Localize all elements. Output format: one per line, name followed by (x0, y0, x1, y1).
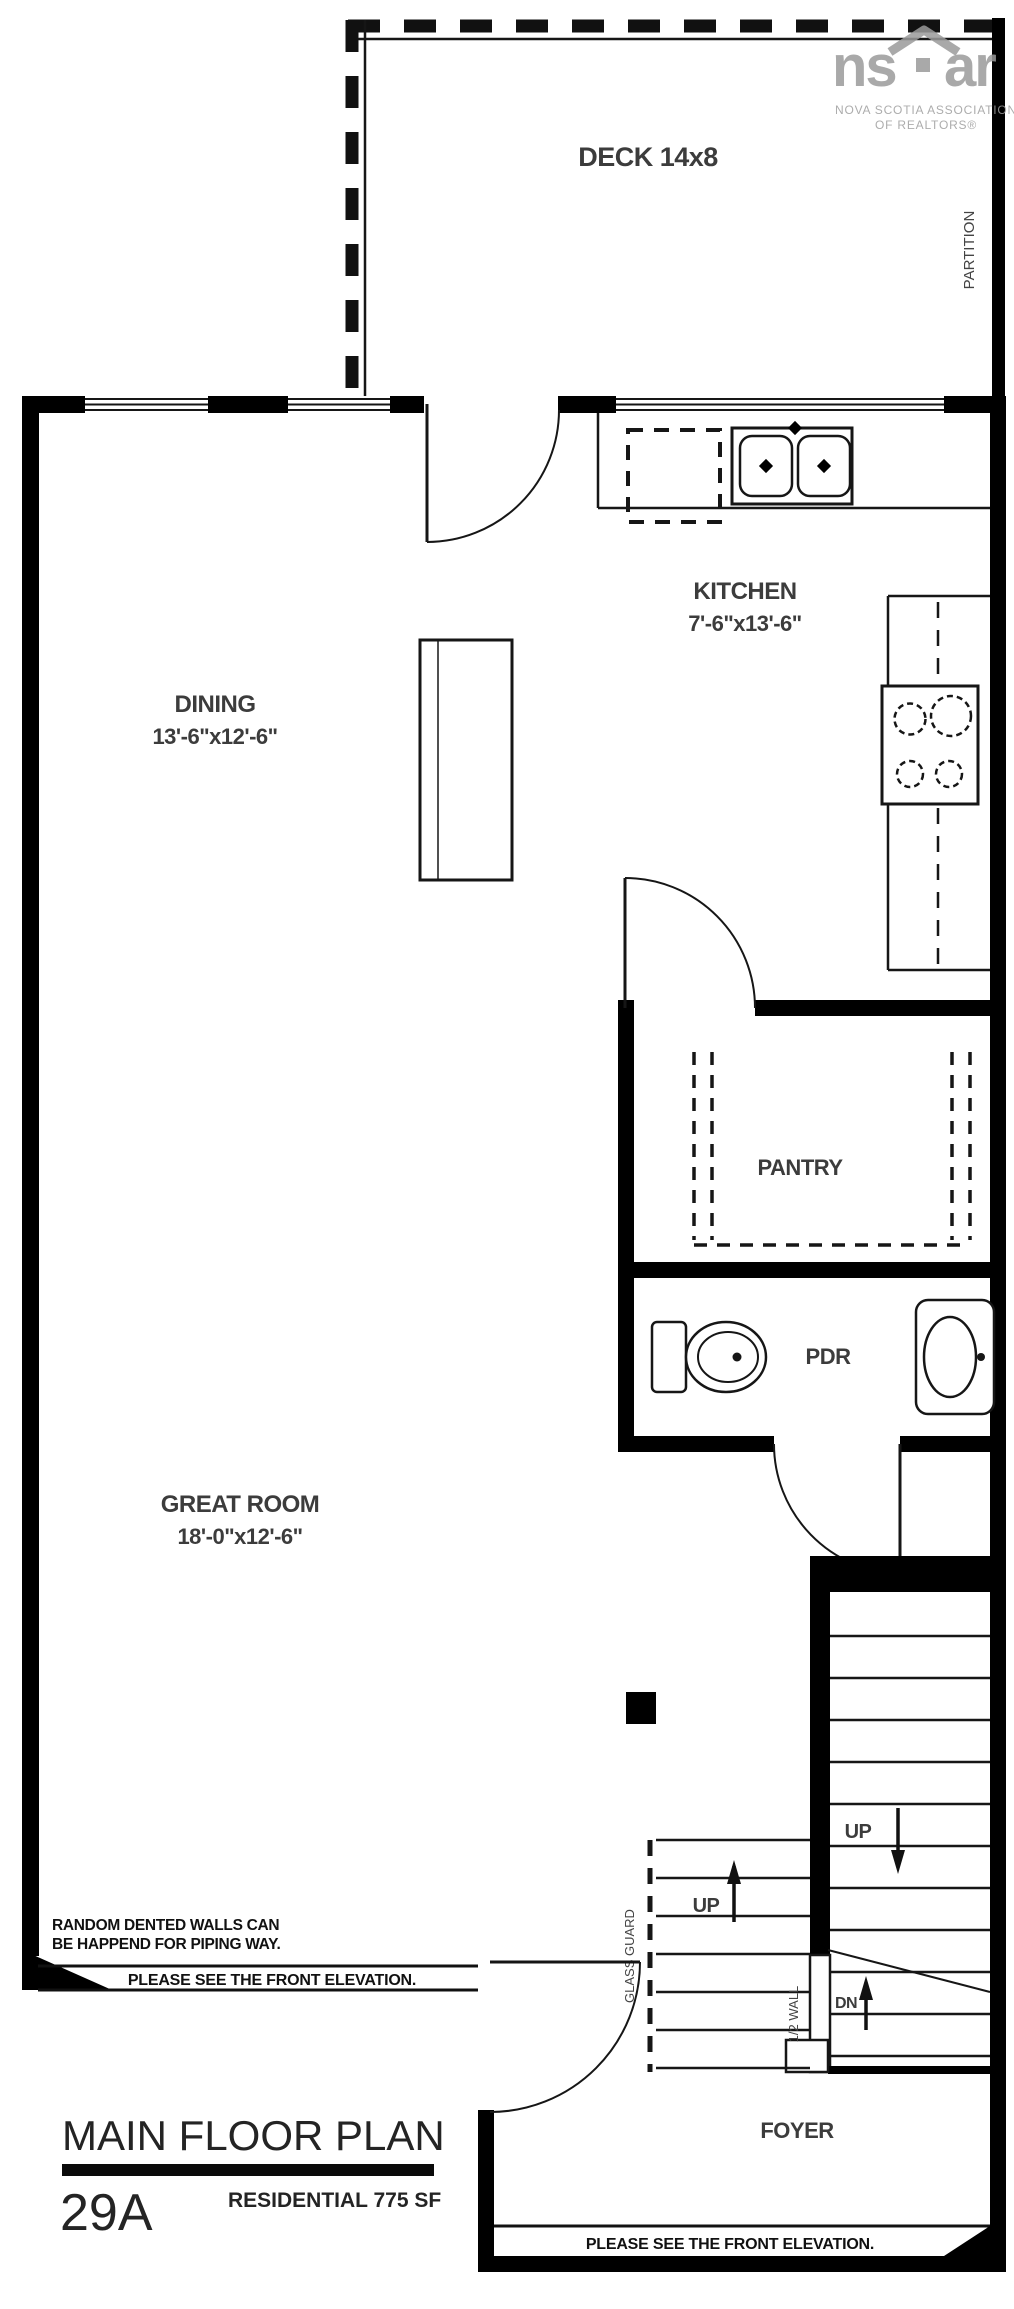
foyer-label: FOYER (760, 2118, 834, 2143)
arrow-head-up-icon (727, 1860, 741, 1884)
dining-window-1 (85, 399, 208, 410)
kitchen-island (420, 640, 512, 880)
top-wall-segment (558, 396, 616, 413)
column-post (626, 1692, 656, 1724)
front-elevation-band-left: PLEASE SEE THE FRONT ELEVATION. (22, 1950, 478, 1990)
stair-treads-right (830, 1636, 990, 2056)
left-wall (22, 396, 39, 1956)
stove (882, 686, 978, 804)
foyer-left-wall (478, 2110, 494, 2272)
stair-up-left-label: UP (693, 1895, 720, 1917)
front-elevation-note-left: PLEASE SEE THE FRONT ELEVATION. (128, 1972, 416, 1989)
half-wall-label: 1/2 WALL (786, 1986, 801, 2043)
patio-door (427, 404, 559, 542)
arrow-head-up-icon (859, 1976, 873, 2000)
band-corner-wedge (22, 1950, 112, 1990)
nsar-logo-text-right: ar (944, 34, 996, 99)
patio-door-swing-arc (427, 410, 559, 542)
band-corner-wedge (944, 2226, 990, 2256)
pantry-pdr-left-wall (618, 1000, 634, 1452)
piping-note-line1: RANDOM DENTED WALLS CAN (52, 1917, 279, 1934)
stair-bottom-edge (828, 2066, 990, 2074)
nsar-roof-chimney-icon (916, 58, 930, 72)
kitchen-label: KITCHEN (693, 578, 796, 605)
deck-label: DECK 14x8 (578, 142, 718, 172)
title-underline (62, 2164, 434, 2176)
deck-area: DECK 14x8 PARTITION (348, 18, 1005, 398)
stair-up-right-label: UP (845, 1821, 872, 1843)
kitchen-fixtures (420, 413, 990, 970)
arrow-head-down-icon (891, 1850, 905, 1874)
pdr-bottom-wall (634, 1436, 774, 1452)
plan-title: MAIN FLOOR PLAN (62, 2112, 445, 2159)
nsar-logo-text-left: ns (832, 34, 896, 99)
title-block: MAIN FLOOR PLAN 29A RESIDENTIAL 775 SF (60, 2112, 445, 2242)
pdr-top-wall (634, 1262, 1006, 1278)
vanity-faucet-dot (977, 1353, 985, 1361)
dining-dims: 13'-6"x12'-6" (152, 724, 277, 749)
nsar-logo: ns ar NOVA SCOTIA ASSOCIATION OF REALTOR… (832, 30, 1014, 132)
toilet-flush-dot (733, 1353, 742, 1362)
pantry-label: PANTRY (758, 1155, 844, 1180)
vanity-basin (924, 1317, 976, 1397)
toilet-bowl-inner (698, 1332, 758, 1382)
top-wall-segment (208, 396, 288, 413)
entry-door (490, 1962, 640, 2112)
dining-label: DINING (175, 691, 256, 718)
partition-label: PARTITION (961, 211, 978, 290)
pdr-label: PDR (806, 1344, 852, 1369)
staircase: GLASS GUARD 1/2 WALL UP UP DN (622, 1556, 1006, 2074)
pantry-shelves-dashed (694, 1052, 970, 1245)
pantry-top-wall (755, 1000, 1006, 1016)
pdr-door-swing-arc (774, 1444, 900, 1574)
dining-window-2 (288, 399, 390, 410)
toilet-tank (652, 1322, 686, 1392)
floor-plan-page: DECK 14x8 PARTITION ns ar NOVA SCOTIA AS… (0, 0, 1014, 2304)
plan-subtitle: RESIDENTIAL 775 SF (228, 2189, 441, 2212)
floor-plan-drawing: DECK 14x8 PARTITION ns ar NOVA SCOTIA AS… (0, 0, 1014, 2304)
kitchen-window (616, 399, 944, 410)
entry-door-swing-arc (490, 1962, 640, 2112)
front-elevation-note-bottom: PLEASE SEE THE FRONT ELEVATION. (586, 2236, 874, 2253)
glass-guard-label: GLASS GUARD (622, 1909, 637, 2003)
nsar-tagline-1: NOVA SCOTIA ASSOCIATION (835, 103, 1014, 117)
stair-spine-wall (810, 1592, 830, 1955)
stair-down-label: DN (835, 1995, 857, 2012)
pdr-bottom-wall (900, 1436, 1006, 1452)
foyer-bottom-wall (478, 2256, 1006, 2272)
pantry-door-swing-arc (625, 878, 755, 1008)
piping-note: RANDOM DENTED WALLS CAN BE HAPPEND FOR P… (52, 1917, 280, 1953)
great-room-label: GREAT ROOM (161, 1491, 320, 1518)
piping-note-line2: BE HAPPEND FOR PIPING WAY. (52, 1936, 280, 1953)
powder-room: PDR (634, 1262, 1006, 1574)
unit-number: 29A (60, 2184, 153, 2242)
stair-header-wall (810, 1556, 1006, 1592)
great-room-dims: 18'-0"x12'-6" (177, 1524, 302, 1549)
top-wall-segment (390, 396, 424, 413)
kitchen-dims: 7'-6"x13'-6" (688, 611, 801, 636)
nsar-tagline-2: OF REALTORS® (875, 118, 977, 132)
front-elevation-band-bottom: PLEASE SEE THE FRONT ELEVATION. (494, 2226, 990, 2256)
